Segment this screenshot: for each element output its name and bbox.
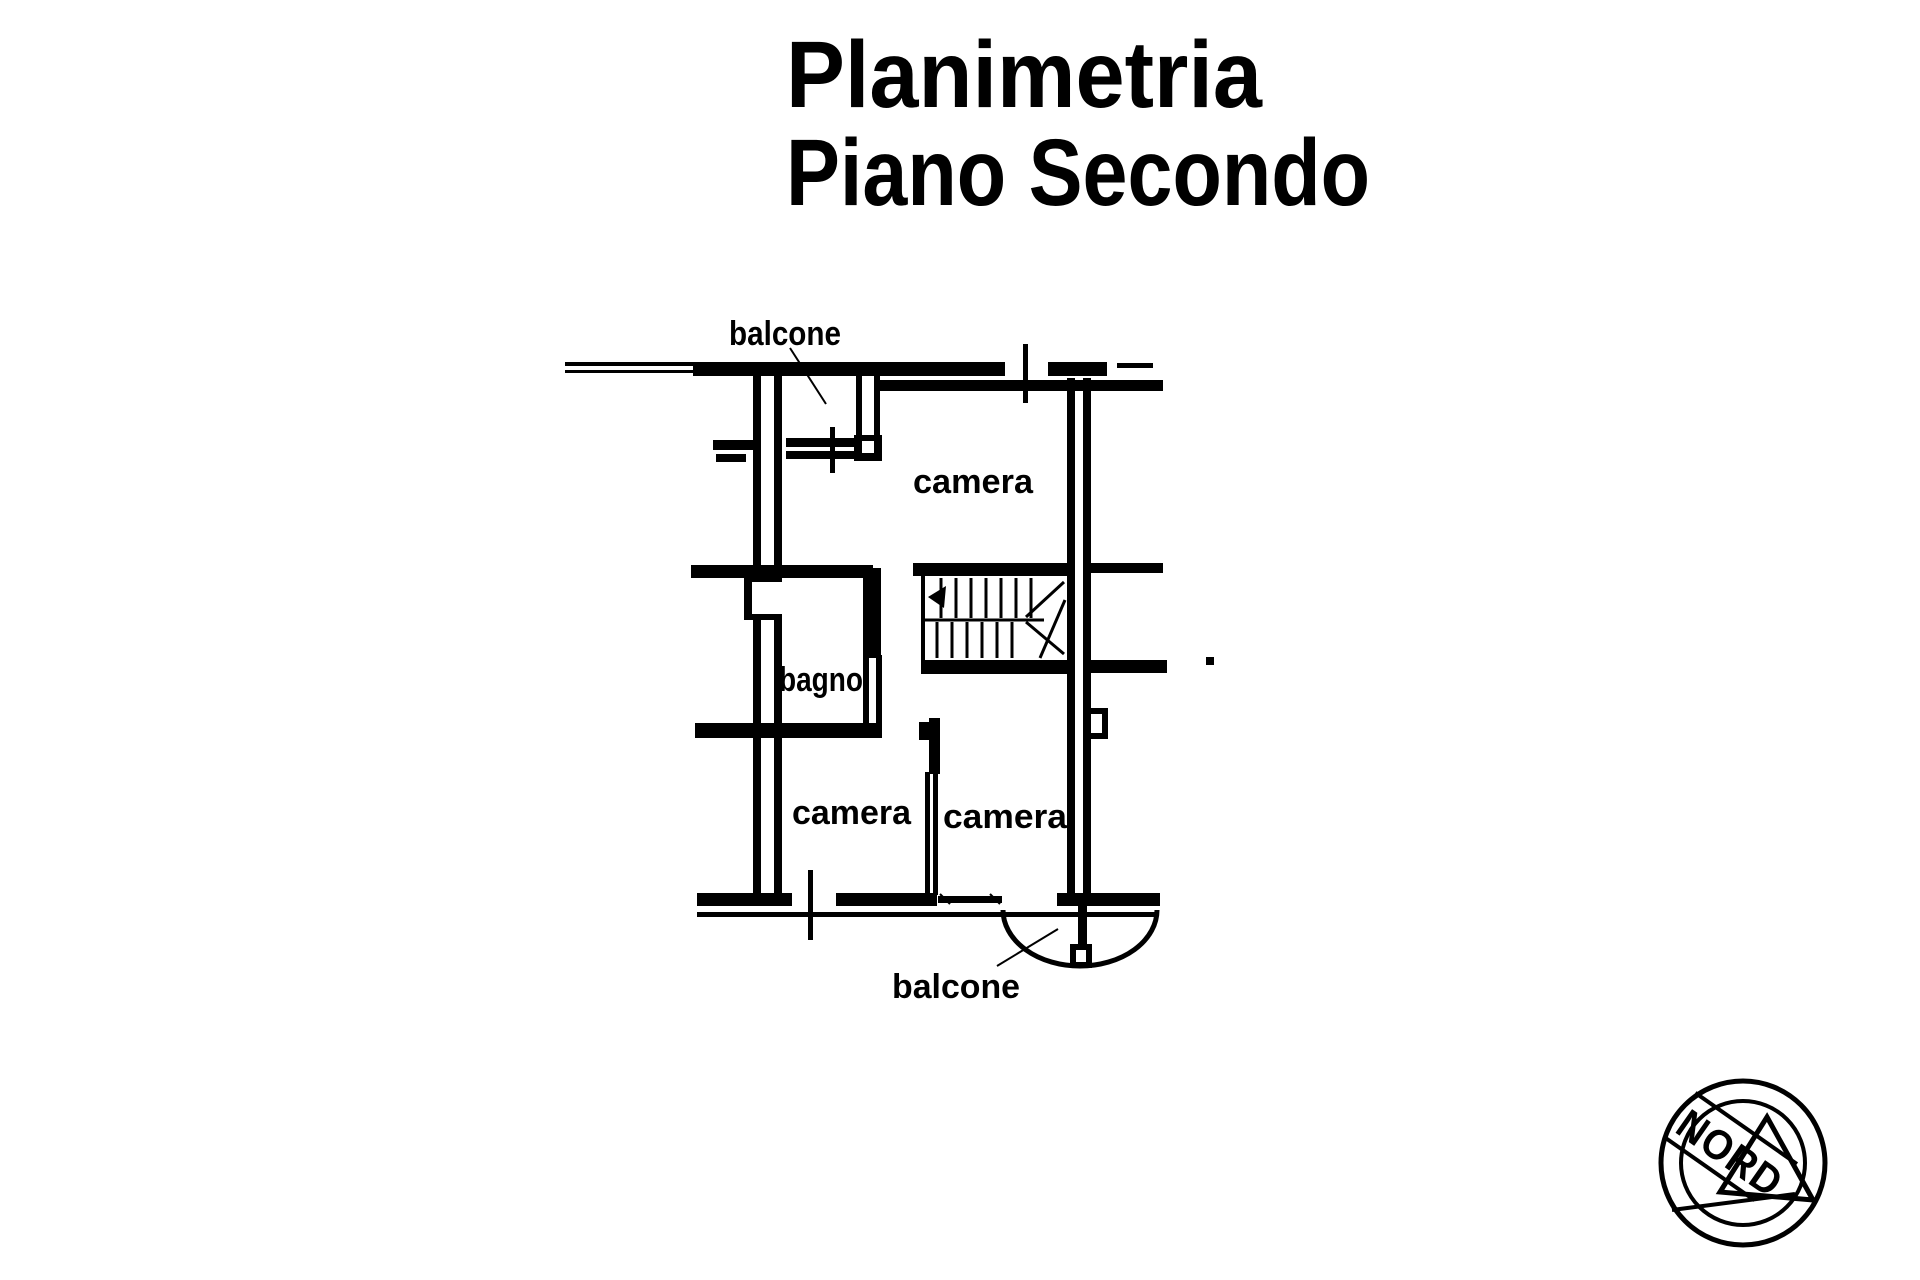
stairs-left-edge (921, 576, 925, 662)
room-label-balcone-top: balcone (729, 315, 841, 353)
wall-stub-left-b (716, 454, 746, 462)
window-tick-bottom (808, 870, 813, 940)
niche-bottom (744, 614, 782, 620)
wall-top-b (1048, 362, 1107, 376)
stairs-diagonal-mid (1040, 600, 1065, 658)
wall-partition-a (925, 772, 930, 895)
walls (565, 344, 1214, 968)
window-tick-top (1023, 344, 1028, 403)
wall-stub-left-a (713, 440, 755, 450)
wall-left-b (774, 362, 782, 905)
balcony-pillar-core (1076, 950, 1086, 962)
wall-top-a (693, 362, 1005, 376)
wall-bagno-right-dbl-a (863, 655, 869, 738)
wall-balcony-bottom-a (786, 438, 858, 447)
stairs-direction-arrow (928, 586, 946, 608)
title-line-1: Planimetria (786, 22, 1263, 128)
wall-stairs-bottom (921, 660, 1073, 674)
wall-bottom-b (836, 893, 937, 906)
wall-bagno-right (863, 568, 881, 658)
wall-partition-cap (929, 718, 940, 774)
wall-thin-top-left (565, 362, 695, 366)
right-wall-notch-bottom (1090, 733, 1108, 739)
room-label-balcone-bottom: balcone (892, 968, 1020, 1006)
stairs (925, 578, 1065, 658)
wall-bottom-c (1057, 893, 1160, 906)
niche-left (744, 576, 752, 620)
window-tick-balcony (830, 427, 835, 473)
wall-bagno-bottom (695, 723, 882, 738)
room-label-bagno: bagno (779, 661, 863, 699)
niche-opening (751, 578, 784, 616)
wall-bottom-a (697, 893, 792, 906)
floor-plan-canvas: Planimetria Piano Secondo (0, 0, 1920, 1280)
wall-balcony-right-a (856, 375, 862, 437)
shaft-box-top-core (862, 441, 874, 453)
wall-stairs-top (913, 563, 1073, 576)
wall-left-a (753, 362, 761, 905)
page-title: Planimetria Piano Secondo (786, 22, 1370, 226)
scan-dot (1206, 657, 1214, 665)
wall-bagno-right-dbl-b (876, 655, 882, 738)
wall-balcony-right-b (874, 375, 880, 437)
room-label-camera-bottom-left: camera (792, 794, 912, 832)
wall-stairs-top-right (1085, 563, 1163, 573)
wall-right-b (1083, 378, 1091, 897)
scanned-floor-plan-page: Planimetria Piano Secondo (0, 0, 1920, 1280)
niche-top (744, 576, 782, 582)
wall-balcony-bottom-b (786, 451, 858, 459)
wall-thin-top-right (1117, 363, 1153, 368)
balcony-post (1078, 906, 1087, 948)
wall-right-a (1067, 378, 1075, 897)
wall-thin-top-left-2 (565, 370, 693, 373)
wall-stairs-bottom-right (1085, 660, 1167, 673)
room-label-camera-top: camera (913, 463, 1034, 501)
north-compass: NORD (1661, 1081, 1825, 1245)
wall-thin-bottom (697, 912, 1157, 917)
wall-camera-top (880, 380, 1163, 391)
title-line-2: Piano Secondo (786, 120, 1370, 226)
wall-partition-flange (919, 722, 929, 740)
room-label-camera-bottom-right: camera (943, 798, 1068, 836)
wall-partition-b (933, 772, 938, 895)
